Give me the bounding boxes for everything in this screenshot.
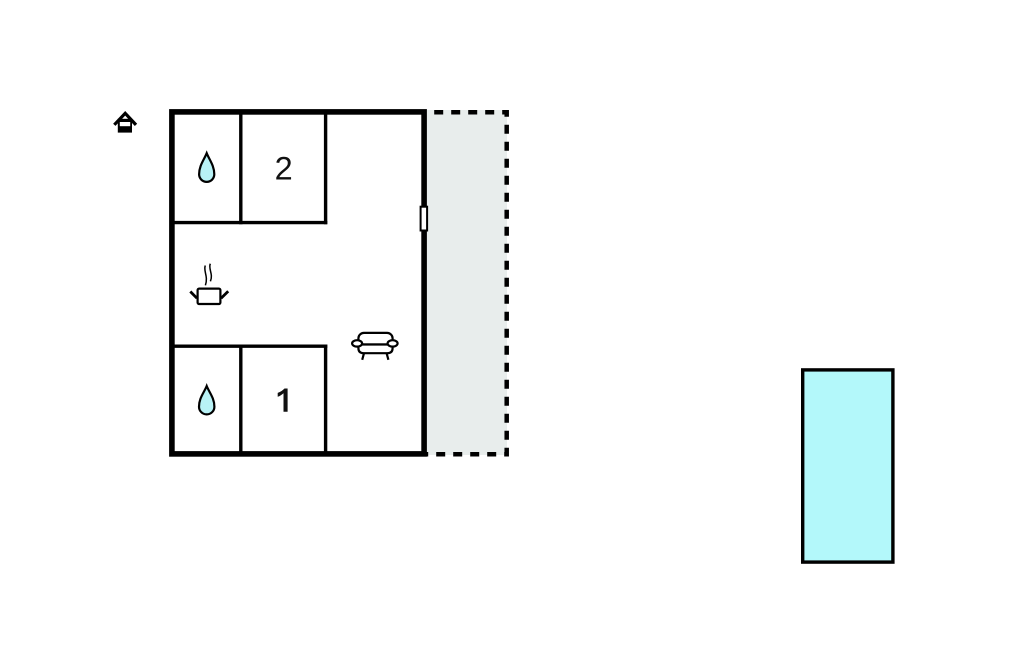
svg-text:2: 2 [275, 150, 293, 186]
